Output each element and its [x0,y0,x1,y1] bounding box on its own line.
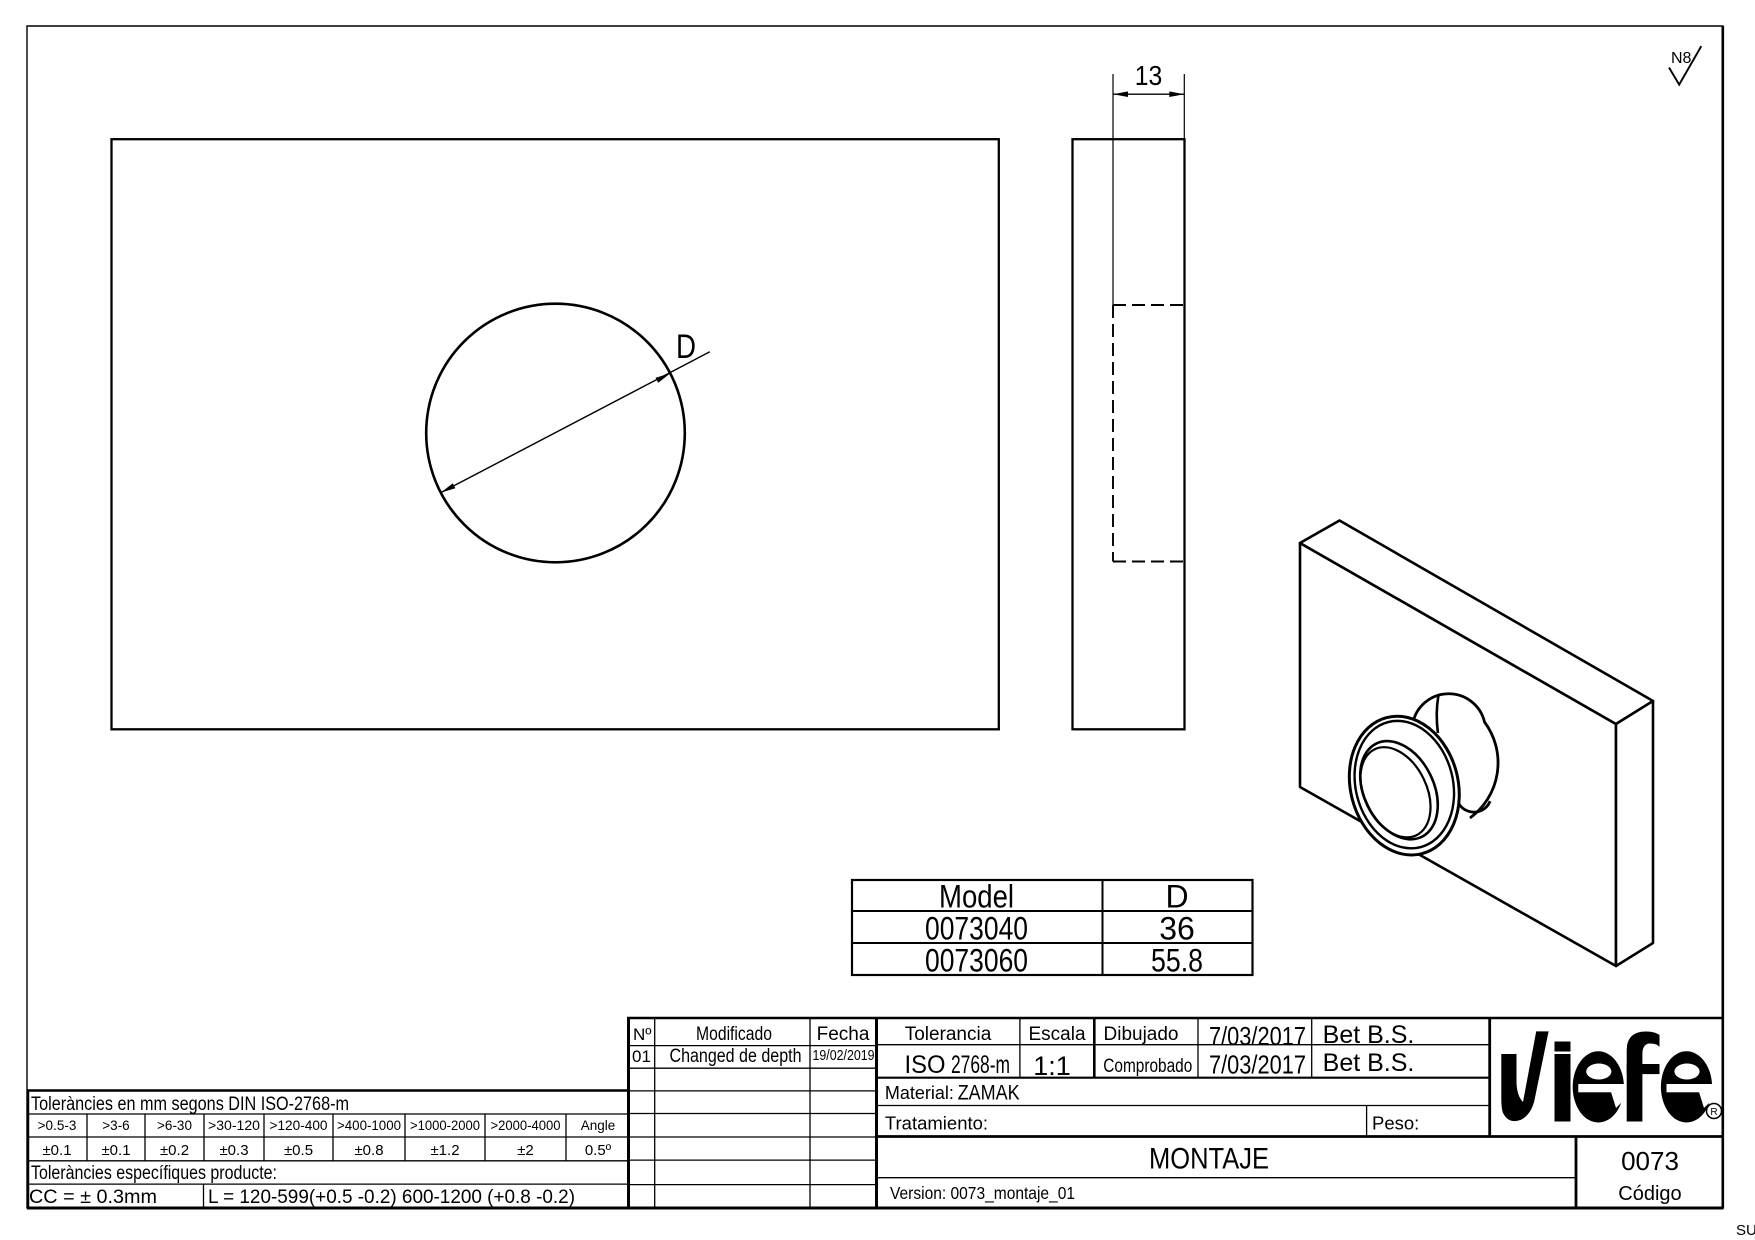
svg-text:Comprobado: Comprobado [1103,1056,1192,1077]
svg-text:±0.8: ±0.8 [354,1142,383,1159]
svg-text:>3-6: >3-6 [102,1118,129,1133]
svg-text:R: R [1710,1107,1717,1118]
svg-text:±0.1: ±0.1 [42,1142,71,1159]
svg-text:Modificado: Modificado [696,1024,772,1045]
svg-text:ZAMAK: ZAMAK [958,1082,1020,1105]
svg-text:01: 01 [632,1047,651,1066]
svg-text:±1.2: ±1.2 [430,1142,459,1159]
svg-text:±2: ±2 [517,1142,534,1159]
svg-text:D: D [676,328,696,366]
svg-text:Angle: Angle [581,1118,616,1133]
svg-text:>0.5-3: >0.5-3 [38,1118,77,1133]
svg-text:19/02/2019: 19/02/2019 [813,1048,875,1064]
svg-text:7/03/2017: 7/03/2017 [1209,1021,1306,1051]
svg-text:Toleràncies específiques produ: Toleràncies específiques producte: [31,1163,277,1184]
svg-text:Nº: Nº [633,1025,652,1044]
svg-text:Dibujado: Dibujado [1104,1024,1179,1045]
svg-text:±0.1: ±0.1 [101,1142,130,1159]
svg-text:Fecha: Fecha [817,1024,870,1045]
svg-text:Changed de depth: Changed de depth [670,1046,802,1067]
svg-text:±0.5: ±0.5 [284,1142,313,1159]
svg-text:0073040: 0073040 [925,911,1028,947]
svg-text:MONTAJE: MONTAJE [1149,1143,1269,1176]
svg-text:Bet B.S.: Bet B.S. [1323,1021,1415,1049]
svg-text:>1000-2000: >1000-2000 [410,1118,480,1133]
svg-text:2768-m: 2768-m [951,1051,1010,1079]
svg-text:±0.2: ±0.2 [160,1142,189,1159]
svg-text:>120-400: >120-400 [270,1118,328,1133]
svg-text:36: 36 [1159,911,1195,947]
svg-text:Bet B.S.: Bet B.S. [1323,1049,1415,1077]
svg-text:0073: 0073 [1621,1146,1679,1176]
svg-text:>2000-4000: >2000-4000 [491,1118,561,1133]
svg-text:ISO: ISO [905,1051,946,1079]
svg-text:D: D [1165,879,1188,915]
svg-text:1:1: 1:1 [1033,1051,1071,1081]
svg-text:Tolerancia: Tolerancia [905,1024,992,1045]
svg-text:13: 13 [1135,60,1163,91]
svg-text:SU: SU [1736,1222,1755,1239]
svg-text:±0.3: ±0.3 [219,1142,248,1159]
svg-text:Escala: Escala [1028,1024,1085,1045]
svg-text:CC = ± 0.3mm: CC = ± 0.3mm [29,1187,157,1208]
svg-text:0.5º: 0.5º [585,1142,612,1159]
svg-text:Version: 0073_montaje_01: Version: 0073_montaje_01 [890,1183,1075,1204]
svg-text:>400-1000: >400-1000 [337,1118,401,1133]
svg-text:55.8: 55.8 [1151,943,1203,979]
svg-text:Peso:: Peso: [1372,1113,1419,1134]
svg-text:0073060: 0073060 [925,943,1028,979]
svg-text:>30-120: >30-120 [208,1118,260,1133]
svg-text:L = 120-599(+0.5 -0.2) 600-120: L = 120-599(+0.5 -0.2) 600-1200 (+0.8 -0… [208,1187,575,1208]
svg-text:N8: N8 [1671,50,1692,67]
svg-text:Código: Código [1618,1183,1681,1205]
svg-text:Toleràncies en mm segons DIN I: Toleràncies en mm segons DIN ISO-2768-m [31,1094,349,1115]
svg-text:>6-30: >6-30 [157,1118,192,1133]
svg-text:7/03/2017: 7/03/2017 [1209,1050,1306,1080]
svg-text:Material:: Material: [885,1083,954,1103]
svg-text:Tratamiento:: Tratamiento: [885,1113,988,1134]
svg-text:Model: Model [939,879,1014,915]
